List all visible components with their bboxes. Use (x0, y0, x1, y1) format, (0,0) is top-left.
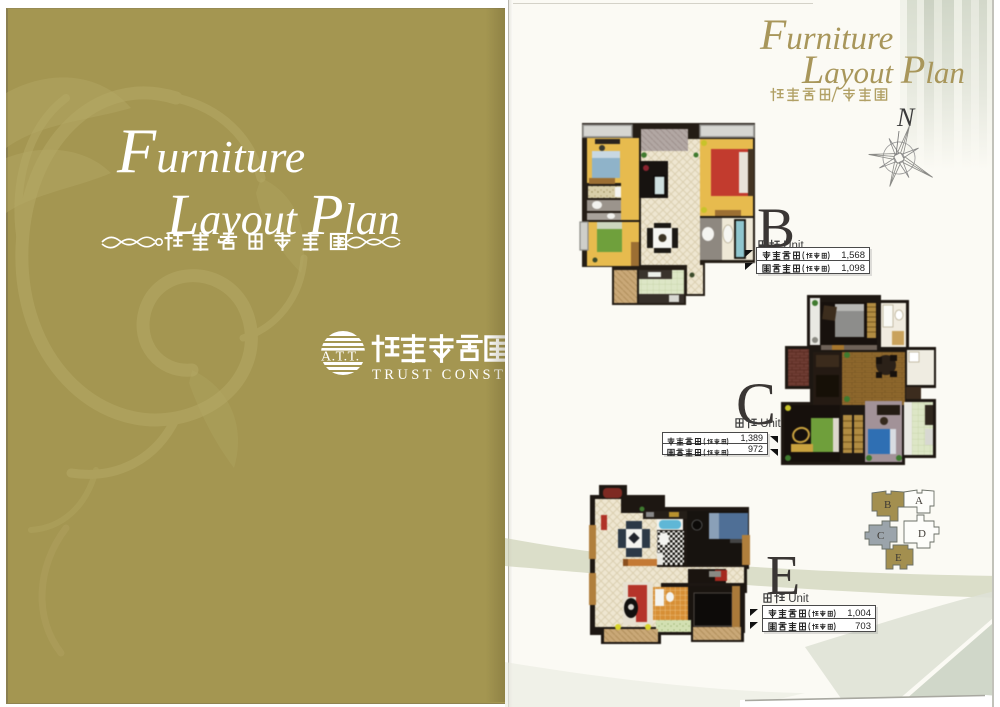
svg-text:A.T.T.: A.T.T. (321, 350, 360, 365)
svg-text:D: D (918, 528, 926, 540)
svg-text:A: A (915, 495, 923, 507)
svg-text:C: C (877, 530, 884, 542)
svg-text:E: E (895, 552, 902, 564)
svg-text:N: N (896, 103, 916, 132)
svg-text:B: B (884, 499, 891, 511)
